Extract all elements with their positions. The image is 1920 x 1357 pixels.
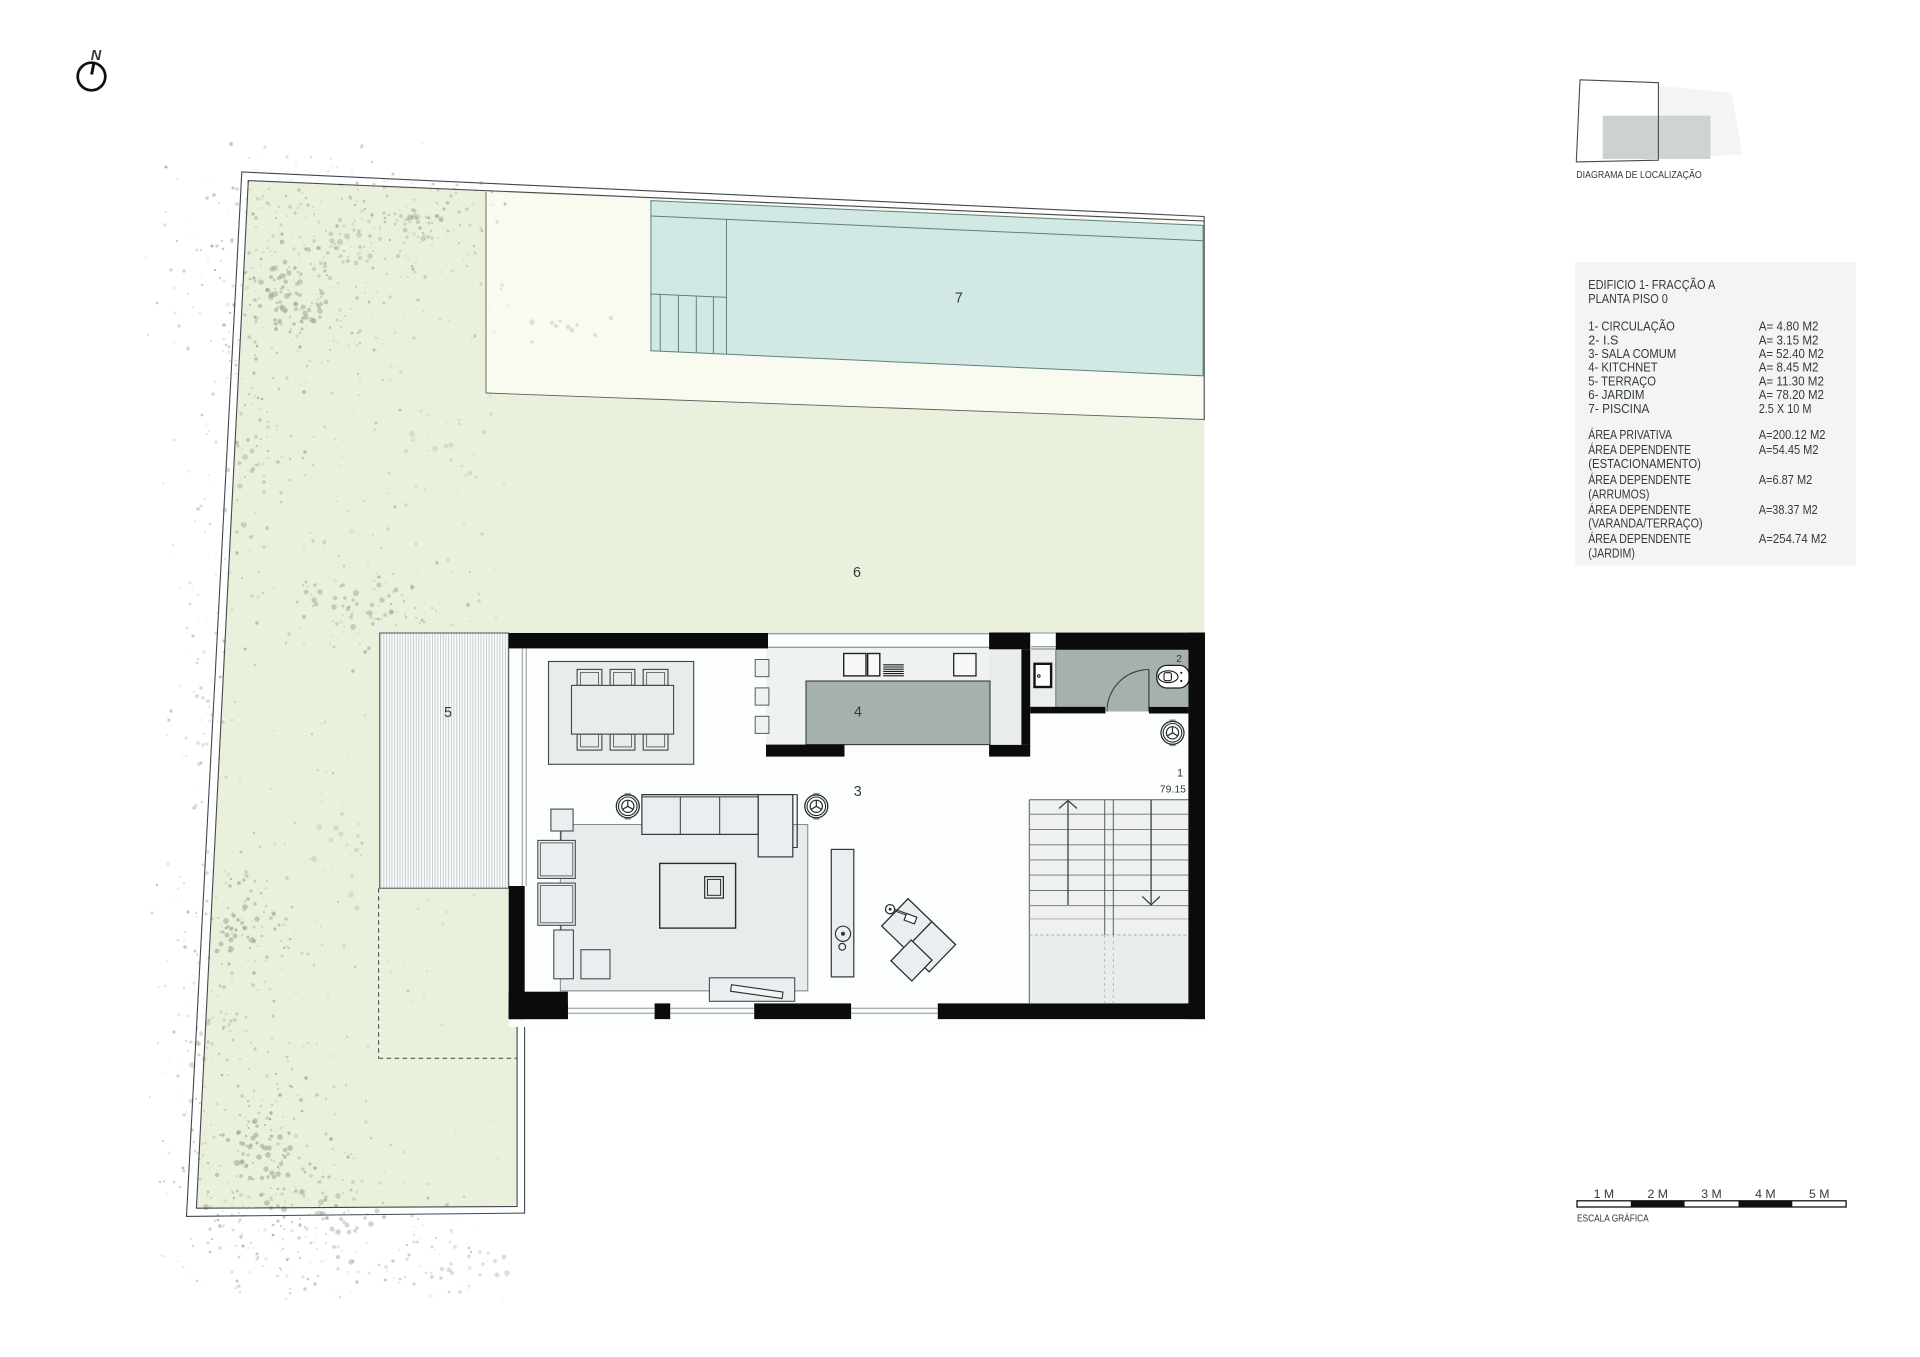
svg-text:ESCALA GRÁFICA: ESCALA GRÁFICA [1577,1212,1649,1225]
svg-text:3 M: 3 M [1701,1187,1722,1201]
svg-text:ÁREA DEPENDENTE: ÁREA DEPENDENTE [1588,502,1691,517]
svg-text:5 M: 5 M [1809,1187,1830,1201]
svg-text:A= 78.20 M2: A= 78.20 M2 [1759,388,1824,402]
svg-text:ÁREA DEPENDENTE: ÁREA DEPENDENTE [1588,442,1691,457]
svg-text:(ARRUMOS): (ARRUMOS) [1588,488,1649,502]
svg-text:(ESTACIONAMENTO): (ESTACIONAMENTO) [1588,457,1701,471]
svg-text:5- TERRAÇO: 5- TERRAÇO [1588,374,1656,388]
svg-text:ÁREA DEPENDENTE: ÁREA DEPENDENTE [1588,472,1691,487]
svg-text:N: N [91,48,102,64]
svg-text:A=38.37 M2: A=38.37 M2 [1759,503,1818,517]
svg-text:3: 3 [854,784,862,800]
svg-text:7: 7 [955,291,963,307]
svg-text:6: 6 [853,565,861,581]
svg-text:1- CIRCULAÇÃO: 1- CIRCULAÇÃO [1588,320,1675,334]
svg-text:A=6.87 M2: A=6.87 M2 [1759,473,1813,487]
svg-text:A= 11.30 M2: A= 11.30 M2 [1759,374,1824,388]
svg-text:(JARDIM): (JARDIM) [1588,547,1635,561]
svg-text:4 M: 4 M [1755,1187,1776,1201]
svg-text:5: 5 [444,705,452,721]
svg-text:6- JARDIM: 6- JARDIM [1588,388,1644,402]
svg-text:2 M: 2 M [1647,1187,1668,1201]
svg-text:A=200.12 M2: A=200.12 M2 [1759,428,1826,442]
svg-text:A=254.74 M2: A=254.74 M2 [1759,532,1827,546]
svg-text:DIAGRAMA DE LOCALIZAÇÃO: DIAGRAMA DE LOCALIZAÇÃO [1576,168,1701,181]
svg-text:4- KITCHNET: 4- KITCHNET [1588,361,1658,375]
svg-text:4: 4 [854,705,862,721]
svg-text:79.15: 79.15 [1160,783,1186,795]
svg-text:A=54.45 M2: A=54.45 M2 [1759,443,1819,457]
svg-text:PLANTA PISO 0: PLANTA PISO 0 [1588,292,1668,306]
svg-text:1 M: 1 M [1594,1187,1615,1201]
svg-text:(VARANDA/TERRAÇO): (VARANDA/TERRAÇO) [1588,517,1702,531]
svg-text:A= 3.15 M2: A= 3.15 M2 [1759,333,1819,347]
svg-text:A= 8.45 M2: A= 8.45 M2 [1759,361,1819,375]
svg-text:2- I.S: 2- I.S [1588,333,1618,347]
svg-text:ÁREA PRIVATIVA: ÁREA PRIVATIVA [1588,427,1672,442]
svg-text:3- SALA COMUM: 3- SALA COMUM [1588,347,1676,361]
svg-text:7- PISCINA: 7- PISCINA [1588,402,1650,416]
svg-text:A= 4.80 M2: A= 4.80 M2 [1759,320,1819,334]
svg-text:EDIFICIO 1- FRACÇÃO A: EDIFICIO 1- FRACÇÃO A [1588,278,1716,292]
svg-text:2: 2 [1176,653,1182,665]
svg-text:2.5 X 10 M: 2.5 X 10 M [1759,402,1812,416]
svg-text:ÁREA DEPENDENTE: ÁREA DEPENDENTE [1588,531,1691,546]
svg-text:A= 52.40 M2: A= 52.40 M2 [1759,347,1824,361]
svg-text:1: 1 [1177,768,1183,780]
